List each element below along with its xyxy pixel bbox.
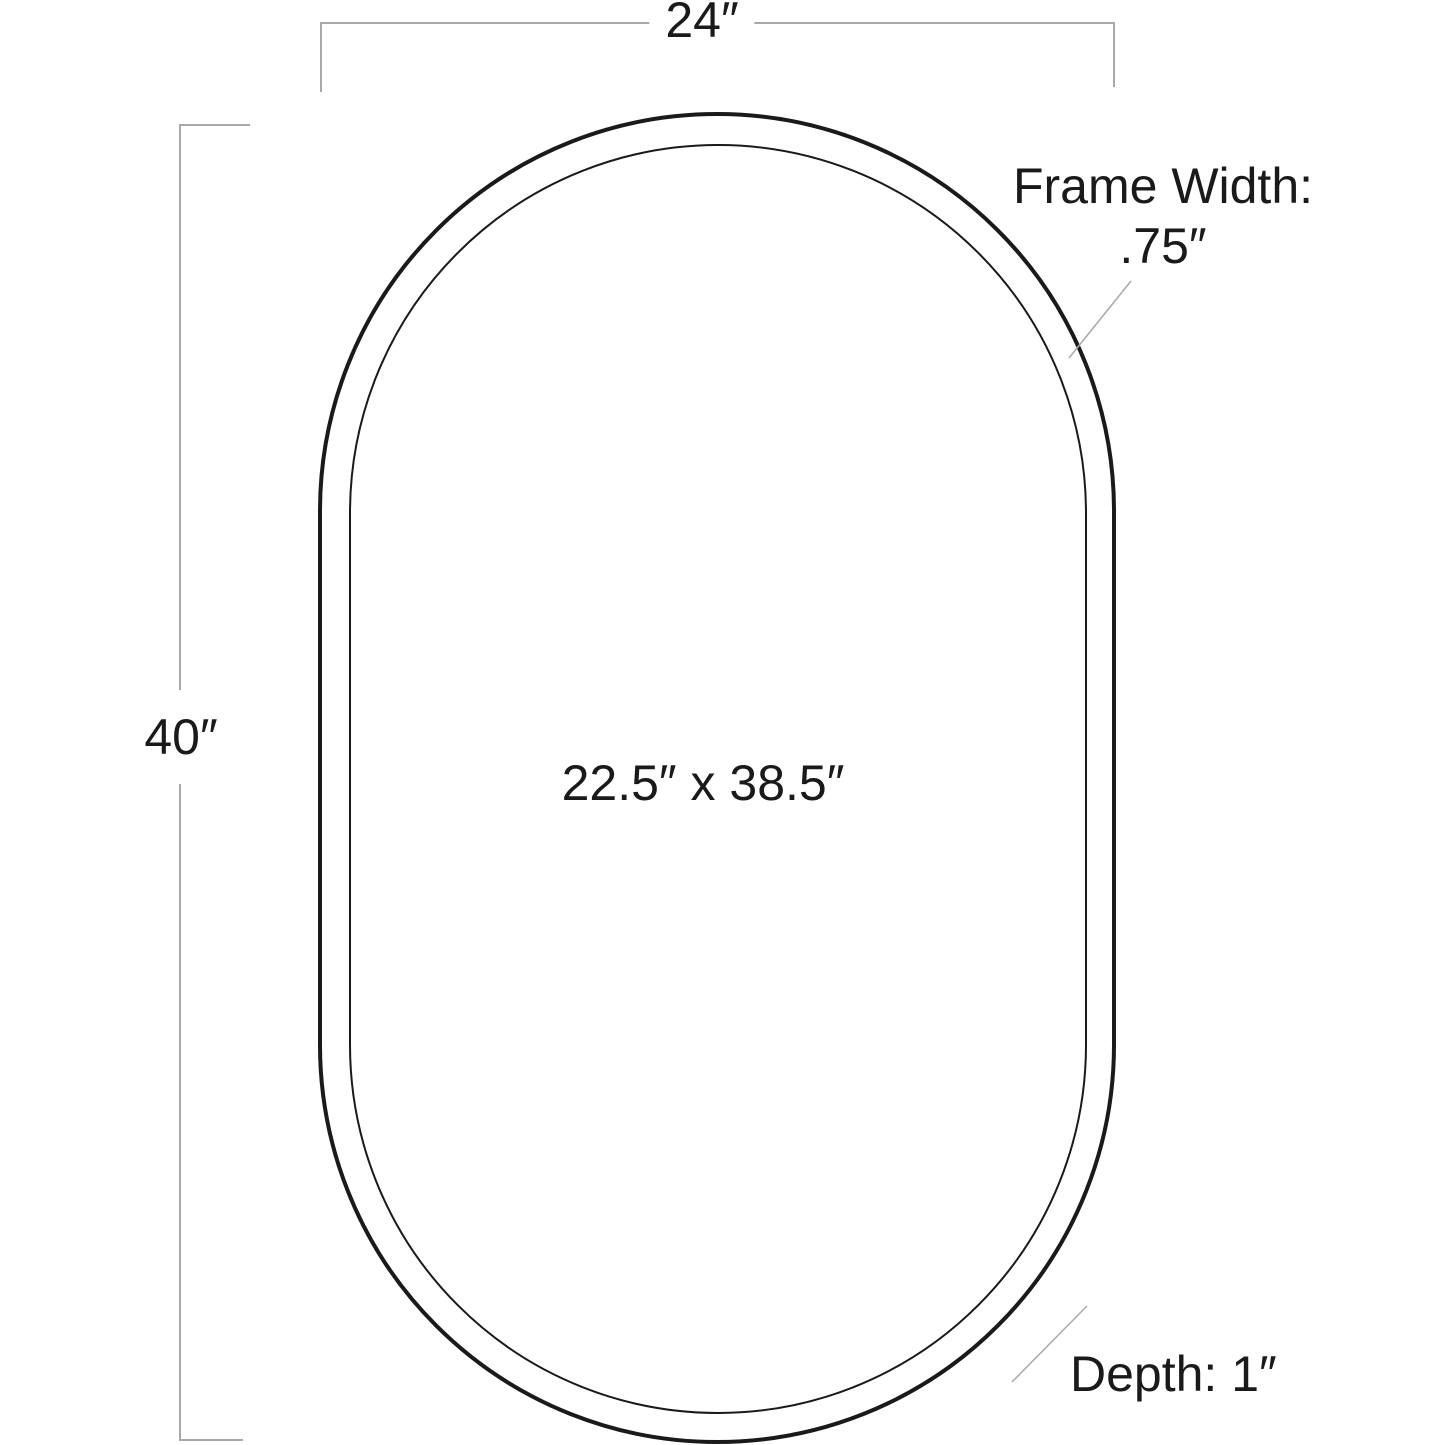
width-dimension-tick-right (1113, 22, 1115, 87)
height-dimension-label: 40″ (134, 690, 227, 784)
height-dimension-tick-bottom (179, 1439, 243, 1441)
frame-width-annotation-line2: .75″ (1013, 216, 1313, 276)
frame-width-annotation-line1: Frame Width: (1013, 156, 1313, 216)
interior-size-label: 22.5″ x 38.5″ (562, 758, 845, 808)
frame-width-annotation: Frame Width: .75″ (1013, 156, 1313, 276)
depth-annotation-label: Depth: 1″ (1070, 1346, 1277, 1404)
width-dimension-label: 24″ (649, 0, 754, 45)
height-dimension-tick-top (179, 124, 250, 126)
width-dimension-tick-left (320, 22, 322, 92)
dimension-diagram: 24″ 40″ 22.5″ x 38.5″ Frame Width: .75″ … (0, 0, 1445, 1445)
